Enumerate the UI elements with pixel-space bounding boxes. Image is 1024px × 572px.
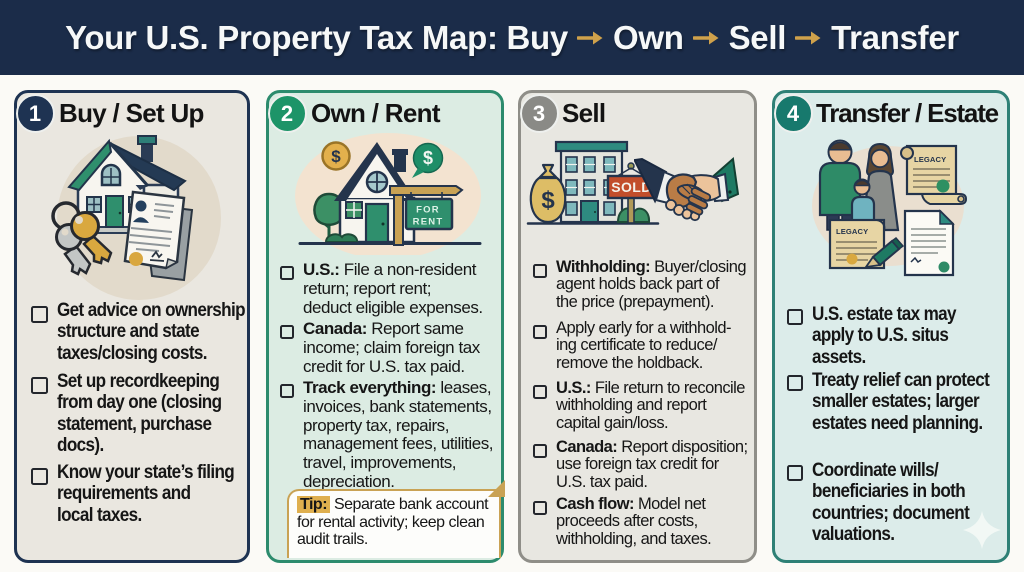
svg-text:RENT: RENT bbox=[413, 217, 444, 228]
svg-text:LEGACY: LEGACY bbox=[836, 227, 868, 236]
svg-text:FOR: FOR bbox=[416, 205, 440, 216]
svg-text:$: $ bbox=[423, 148, 433, 168]
svg-text:$: $ bbox=[541, 187, 555, 214]
svg-text:$: $ bbox=[331, 147, 341, 166]
svg-text:LEGACY: LEGACY bbox=[914, 155, 946, 164]
